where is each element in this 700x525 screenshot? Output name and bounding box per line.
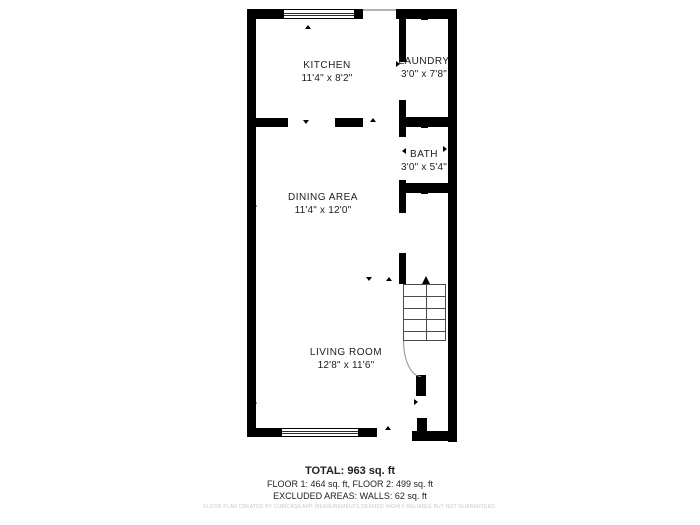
staircase bbox=[403, 284, 446, 341]
dimension-marker-icon bbox=[370, 118, 376, 122]
room-name: KITCHEN bbox=[302, 59, 353, 72]
dimension-marker-icon bbox=[414, 399, 418, 405]
wall-left bbox=[247, 9, 256, 437]
wall-entry-bottom bbox=[412, 431, 457, 441]
window-pane-line bbox=[282, 431, 358, 432]
dimension-tick-icon bbox=[421, 10, 428, 20]
wall-kitchen-dining-a bbox=[256, 118, 288, 127]
wall-column-seg-4 bbox=[399, 253, 406, 284]
room-label-dining: DINING AREA 11'4" x 12'0" bbox=[288, 191, 358, 217]
window-bottom bbox=[281, 428, 359, 437]
room-dimensions: 11'4" x 8'2" bbox=[302, 72, 353, 85]
wall-column-seg-2 bbox=[399, 100, 406, 137]
room-name: LIVING ROOM bbox=[310, 346, 382, 359]
stair-center-line bbox=[426, 285, 427, 340]
dimension-marker-icon bbox=[385, 426, 391, 430]
stair-tread bbox=[404, 319, 445, 320]
wall-bottom-mid bbox=[359, 428, 377, 437]
window-pane-line bbox=[282, 433, 358, 434]
dimension-marker-icon bbox=[303, 120, 309, 124]
dimension-marker-icon bbox=[386, 277, 392, 281]
wall-entry-stub-upper bbox=[416, 375, 426, 396]
wall-bottom-left bbox=[247, 428, 281, 437]
dimension-marker-icon bbox=[253, 203, 257, 209]
window-pane-line bbox=[284, 13, 354, 14]
door-swing-arc bbox=[403, 341, 421, 377]
excluded-areas: EXCLUDED AREAS: WALLS: 62 sq. ft bbox=[267, 490, 433, 502]
room-name: LAUNDRY bbox=[398, 55, 449, 68]
room-dimensions: 3'0" x 5'4" bbox=[401, 161, 447, 174]
room-label-kitchen: KITCHEN 11'4" x 8'2" bbox=[302, 59, 353, 85]
wall-opening-top bbox=[363, 9, 396, 11]
stairs-up-arrow-icon bbox=[422, 276, 430, 284]
stair-tread bbox=[404, 308, 445, 309]
disclaimer-text: FLOOR PLAN CREATED BY CUBICASA APP. MEAS… bbox=[203, 504, 496, 510]
floor-plan-page: KITCHEN 11'4" x 8'2" LAUNDRY 3'0" x 7'8"… bbox=[0, 0, 700, 525]
stair-tread bbox=[404, 331, 445, 332]
dimension-marker-icon bbox=[366, 277, 372, 281]
dimension-tick-icon bbox=[421, 183, 428, 194]
room-label-living: LIVING ROOM 12'8" x 11'6" bbox=[310, 346, 382, 372]
wall-top-mid bbox=[355, 9, 363, 19]
room-dimensions: 11'4" x 12'0" bbox=[288, 204, 358, 217]
dimension-tick-icon bbox=[421, 117, 428, 128]
wall-entry-stub-lower bbox=[417, 418, 427, 431]
dimension-marker-icon bbox=[253, 400, 257, 406]
wall-column-seg-3 bbox=[399, 180, 406, 213]
area-summary: TOTAL: 963 sq. ft FLOOR 1: 464 sq. ft, F… bbox=[267, 464, 433, 502]
room-name: DINING AREA bbox=[288, 191, 358, 204]
window-top bbox=[283, 9, 355, 19]
wall-kitchen-dining-b bbox=[335, 118, 363, 127]
room-dimensions: 3'0" x 7'8" bbox=[398, 68, 449, 81]
dimension-marker-icon bbox=[305, 25, 311, 29]
window-pane-line bbox=[284, 15, 354, 16]
room-dimensions: 12'8" x 11'6" bbox=[310, 359, 382, 372]
room-label-laundry: LAUNDRY 3'0" x 7'8" bbox=[398, 55, 449, 81]
total-area: TOTAL: 963 sq. ft bbox=[267, 464, 433, 478]
room-name: BATH bbox=[401, 148, 447, 161]
room-label-bath: BATH 3'0" x 5'4" bbox=[401, 148, 447, 174]
floor-areas: FLOOR 1: 464 sq. ft, FLOOR 2: 499 sq. ft bbox=[267, 478, 433, 490]
stair-tread bbox=[404, 296, 445, 297]
